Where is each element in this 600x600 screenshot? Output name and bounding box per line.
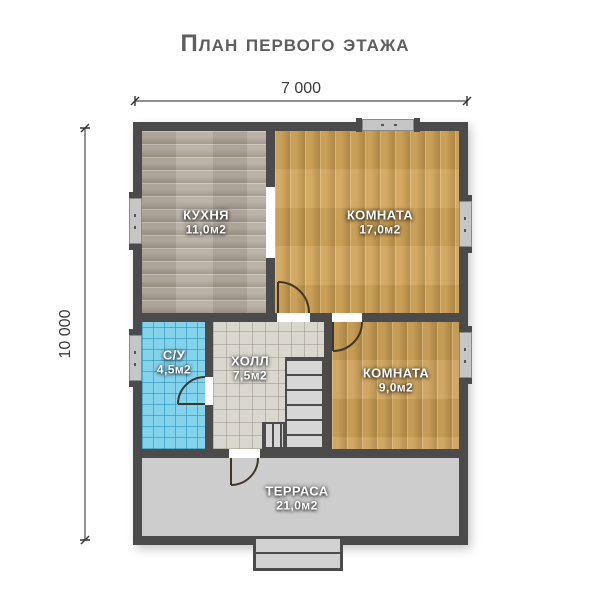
dimension-width-label: 7 000 [281, 80, 321, 97]
label-room-large: КОМНАТА 17,0м2 [347, 208, 413, 237]
wall-terrace [142, 449, 459, 458]
stairs-flight [285, 357, 324, 449]
room-name: ТЕРРАСА [265, 484, 328, 499]
opening-terrace-door [229, 449, 260, 458]
room-name: КУХНЯ [183, 208, 229, 223]
room-name: КОМНАТА [347, 208, 413, 223]
room-name: КОМНАТА [363, 366, 429, 381]
room-area: 11,0м2 [186, 223, 227, 237]
room-area: 4,5м2 [157, 363, 191, 377]
entry-steps [253, 536, 343, 571]
opening-room-large-door [277, 313, 310, 322]
floor-plan-canvas: План первого этажа [0, 0, 600, 600]
opening-room-small-door [332, 313, 362, 322]
label-kitchen: КУХНЯ 11,0м2 [183, 208, 229, 237]
opening-bathroom-door [205, 377, 213, 405]
wall-room-small [324, 322, 332, 449]
opening-kitchen-passage [266, 187, 275, 258]
room-area: 7,5м2 [233, 369, 267, 383]
stairs-landing [262, 422, 285, 449]
label-room-small: КОМНАТА 9,0м2 [363, 366, 429, 395]
plan-title: План первого этажа [0, 30, 595, 58]
dimension-width: 7 000 [131, 80, 471, 106]
room-name: ХОЛЛ [231, 354, 269, 369]
dimension-height-label: 10 000 [57, 309, 74, 358]
room-area: 21,0м2 [276, 499, 317, 513]
label-terrace: ТЕРРАСА 21,0м2 [265, 484, 328, 513]
label-bathroom: С/У 4,5м2 [157, 348, 191, 377]
dimension-height: 10 000 [57, 124, 90, 544]
label-hall: ХОЛЛ 7,5м2 [231, 354, 269, 383]
room-name: С/У [163, 348, 185, 363]
room-area: 9,0м2 [379, 381, 413, 395]
room-area: 17,0м2 [359, 223, 400, 237]
floor-bathroom [142, 322, 205, 449]
